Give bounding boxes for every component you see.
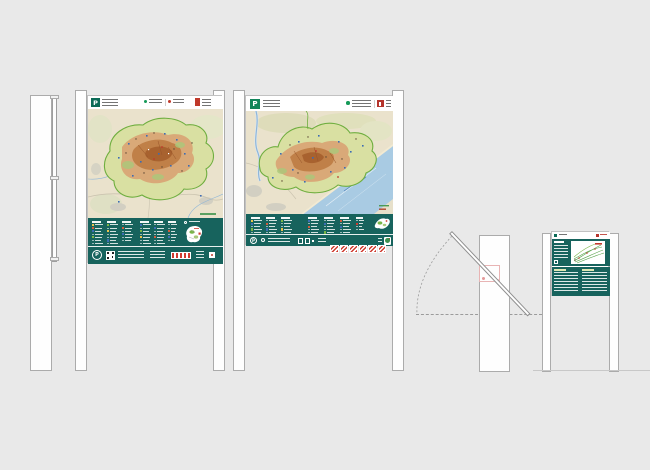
network-logo-text <box>268 238 290 244</box>
park-logo-text <box>559 234 567 238</box>
side-view-post <box>30 95 52 371</box>
trail-map-sign-b <box>246 111 393 214</box>
hiking-flag-icon <box>340 245 349 253</box>
park-logo-icon: P <box>250 99 260 109</box>
description-column-right <box>582 272 607 293</box>
footer-mid-text <box>318 238 326 244</box>
park-logo-text <box>102 99 118 106</box>
mount-bracket-middle <box>50 176 59 180</box>
legend-column <box>168 221 184 242</box>
sign-b-legend-band <box>246 214 393 234</box>
header-divider <box>165 99 166 106</box>
footer-circle-logo: P <box>250 237 257 244</box>
mount-bracket-top <box>50 95 59 99</box>
legend-info-icon <box>184 221 187 224</box>
legend-column <box>281 217 299 234</box>
charter-cert-icon <box>168 100 171 103</box>
itinerary-inset-map <box>571 241 605 264</box>
hiking-flag-icon <box>359 245 368 253</box>
small-sign-panel <box>551 231 609 296</box>
park-logo-icon: P <box>91 98 100 107</box>
network-cert-icon <box>144 100 147 103</box>
footer-circle-logo: P <box>92 250 102 260</box>
qr-code <box>106 251 115 260</box>
small-sign-side-post <box>479 235 510 372</box>
sign-a-footer-band: P <box>88 246 223 264</box>
column-title-text <box>554 269 566 271</box>
network-cert-icon <box>346 101 350 105</box>
section-title-text <box>554 241 564 243</box>
sign-b-panel: P <box>245 95 392 245</box>
small-sign-post-left <box>542 233 551 372</box>
map-credits-text <box>379 205 389 206</box>
description-column-left <box>554 272 578 293</box>
network-logo-icon <box>261 238 265 242</box>
park-logo-text <box>263 100 280 108</box>
sign-a-header: P <box>88 96 223 109</box>
sign-b-footer-band: P <box>246 234 393 246</box>
sign-b-header: P <box>246 96 393 111</box>
header-divider <box>374 100 375 108</box>
small-sign-header <box>552 232 610 239</box>
pivot-marker <box>482 277 485 280</box>
charter-cert-text <box>173 99 184 105</box>
trail-map-sign-a <box>88 109 223 218</box>
hiking-flag-icon <box>368 245 377 253</box>
red-partner-icon <box>596 234 599 238</box>
column-title-text <box>582 269 594 271</box>
striped-partner-logo <box>171 252 191 259</box>
legend-column <box>122 221 140 242</box>
ground-line <box>533 370 650 371</box>
network-cert-text <box>352 100 371 108</box>
network-cert-text <box>149 99 162 105</box>
footer-end-text <box>378 238 382 244</box>
inset-locator-map <box>185 225 204 247</box>
sign-a-post-left <box>75 90 87 371</box>
mount-bracket-bottom <box>50 257 59 261</box>
inset-title-text <box>595 243 602 245</box>
green-emblem-icon <box>384 237 391 245</box>
sign-a-legend-band <box>88 218 223 246</box>
map-credits-text <box>200 213 216 215</box>
red-partner-text <box>600 234 607 238</box>
hiking-flag-icon <box>378 245 387 253</box>
legend-column <box>356 217 371 231</box>
sign-b-post-right <box>392 90 404 371</box>
small-sign-bottom-section <box>552 267 610 296</box>
sign-a-panel: P <box>87 95 222 263</box>
hiking-flag-icon <box>349 245 358 253</box>
red-authority-icon <box>377 100 384 107</box>
pictogram-box <box>554 260 558 264</box>
footer-text-block-1 <box>118 251 144 260</box>
footer-text-block-3 <box>196 251 204 260</box>
sign-b-post-left <box>233 90 245 371</box>
park-logo-icon <box>554 234 557 238</box>
inset-locator-map <box>373 216 391 231</box>
small-sign-post-right <box>609 233 619 372</box>
intro-text-block <box>554 245 568 258</box>
small-sign-top-section <box>552 239 610 266</box>
red-authority-text <box>386 100 391 108</box>
legend-info-text <box>189 221 200 224</box>
footer-text-block-2 <box>150 251 165 260</box>
outline-logo-group <box>298 238 314 244</box>
signage-drawing-canvas: P <box>0 0 650 470</box>
hiking-flag-icon <box>330 245 339 253</box>
red-partner-text <box>202 99 211 106</box>
red-partner-icon <box>195 98 200 106</box>
footer-small-logo <box>209 252 215 258</box>
